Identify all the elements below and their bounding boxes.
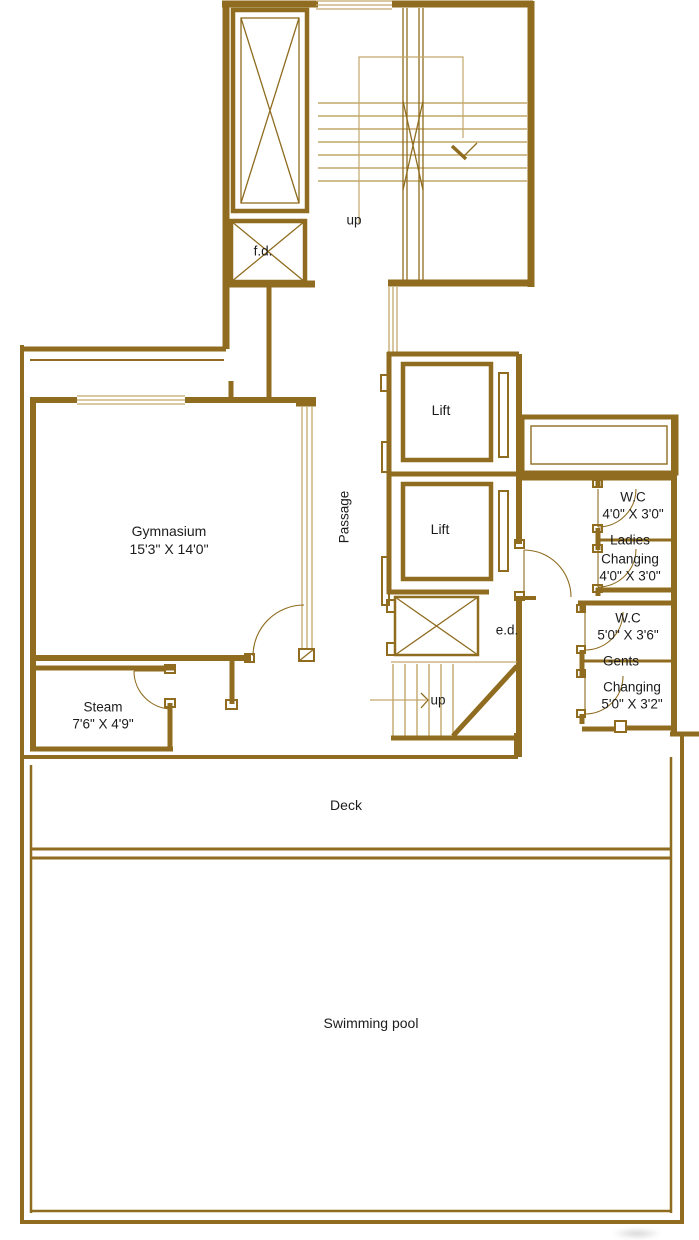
wc-ladies-dims: 4'0" X 3'0" — [602, 506, 663, 523]
watermark-smudge — [612, 1228, 662, 1239]
top-right-room — [522, 417, 676, 473]
gymnasium-name: Gymnasium — [129, 523, 208, 541]
wc-gents-dims: 5'0" X 3'6" — [597, 627, 658, 644]
wc-ladies-name: W.C — [602, 489, 663, 506]
wc-gents-label: W.C 5'0" X 3'6" — [597, 610, 658, 645]
steam-dims: 7'6" X 4'9" — [72, 716, 133, 733]
steam-label: Steam 7'6" X 4'9" — [72, 699, 133, 734]
gents-label: Gents — [603, 652, 639, 669]
changing-ladies-label: Changing 4'0" X 3'0" — [599, 551, 660, 586]
steam-name: Steam — [72, 699, 133, 716]
gymnasium-dims: 15'3" X 14'0" — [129, 541, 208, 559]
changing-ladies-name: Changing — [599, 551, 660, 568]
changing-gents-dims: 5'0" X 3'2" — [601, 696, 662, 713]
ed-label: e.d. — [496, 621, 519, 638]
changing-gents-name: Changing — [601, 679, 662, 696]
changing-ladies-dims: 4'0" X 3'0" — [599, 568, 660, 585]
gymnasium-label: Gymnasium 15'3" X 14'0" — [129, 523, 208, 559]
gymnasium-room — [30, 381, 316, 749]
floor-plan-linework — [0, 0, 699, 1240]
ed-shaft — [387, 597, 478, 655]
deck-label: Deck — [330, 797, 362, 815]
ladies-label: Ladies — [610, 531, 650, 548]
swimming-pool-label: Swimming pool — [324, 1015, 419, 1033]
floor-plan: f.d. up Lift Lift Passage Gymnasium 15'3… — [0, 0, 699, 1240]
stair-block — [222, 1, 534, 400]
wc-gents-name: W.C — [597, 610, 658, 627]
wc-ladies-label: W.C 4'0" X 3'0" — [602, 489, 663, 524]
changing-gents-label: Changing 5'0" X 3'2" — [601, 679, 662, 714]
fd-label: f.d. — [254, 242, 273, 259]
passage-label: Passage — [335, 491, 352, 544]
lift-1-label: Lift — [432, 402, 451, 420]
lift-2-label: Lift — [431, 521, 450, 539]
stairs-mid-up-label: up — [430, 691, 445, 708]
stairs-top-up-label: up — [346, 211, 361, 228]
